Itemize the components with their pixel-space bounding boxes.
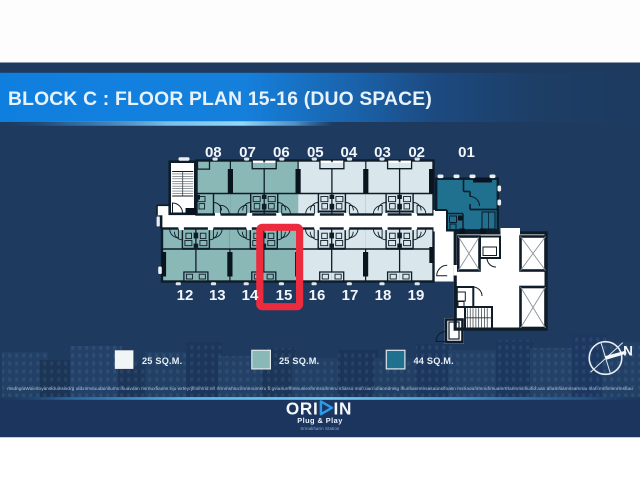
svg-text:18: 18 — [375, 287, 392, 304]
svg-text:25 SQ.M.: 25 SQ.M. — [279, 356, 319, 366]
svg-text:12: 12 — [177, 287, 194, 304]
svg-text:N: N — [623, 344, 633, 359]
svg-text:Plug & Play: Plug & Play — [297, 416, 343, 425]
svg-text:msdngiuWuiintoyanslduinsivdrg: msdngiuWuiintoyanslduinsivdrg uldxnmsuud… — [7, 386, 633, 391]
svg-text:13: 13 — [209, 287, 226, 304]
svg-text:07: 07 — [239, 144, 256, 161]
svg-text:BLOCK C : FLOOR PLAN 15-16 (DU: BLOCK C : FLOOR PLAN 15-16 (DUO SPACE) — [8, 89, 432, 110]
svg-text:44 SQ.M.: 44 SQ.M. — [414, 356, 454, 366]
svg-text:01: 01 — [458, 144, 475, 161]
svg-text:14: 14 — [242, 287, 259, 304]
svg-text:16: 16 — [309, 287, 326, 304]
svg-text:06: 06 — [273, 144, 290, 161]
svg-text:17: 17 — [342, 287, 359, 304]
svg-text:08: 08 — [205, 144, 222, 161]
svg-text:04: 04 — [341, 144, 358, 161]
svg-text:15: 15 — [276, 287, 293, 304]
svg-text:Srinakharin Station: Srinakharin Station — [300, 426, 340, 431]
svg-text:05: 05 — [307, 144, 324, 161]
svg-text:03: 03 — [374, 144, 391, 161]
svg-text:19: 19 — [408, 287, 425, 304]
svg-text:02: 02 — [408, 144, 425, 161]
svg-text:25 SQ.M.: 25 SQ.M. — [142, 356, 182, 366]
